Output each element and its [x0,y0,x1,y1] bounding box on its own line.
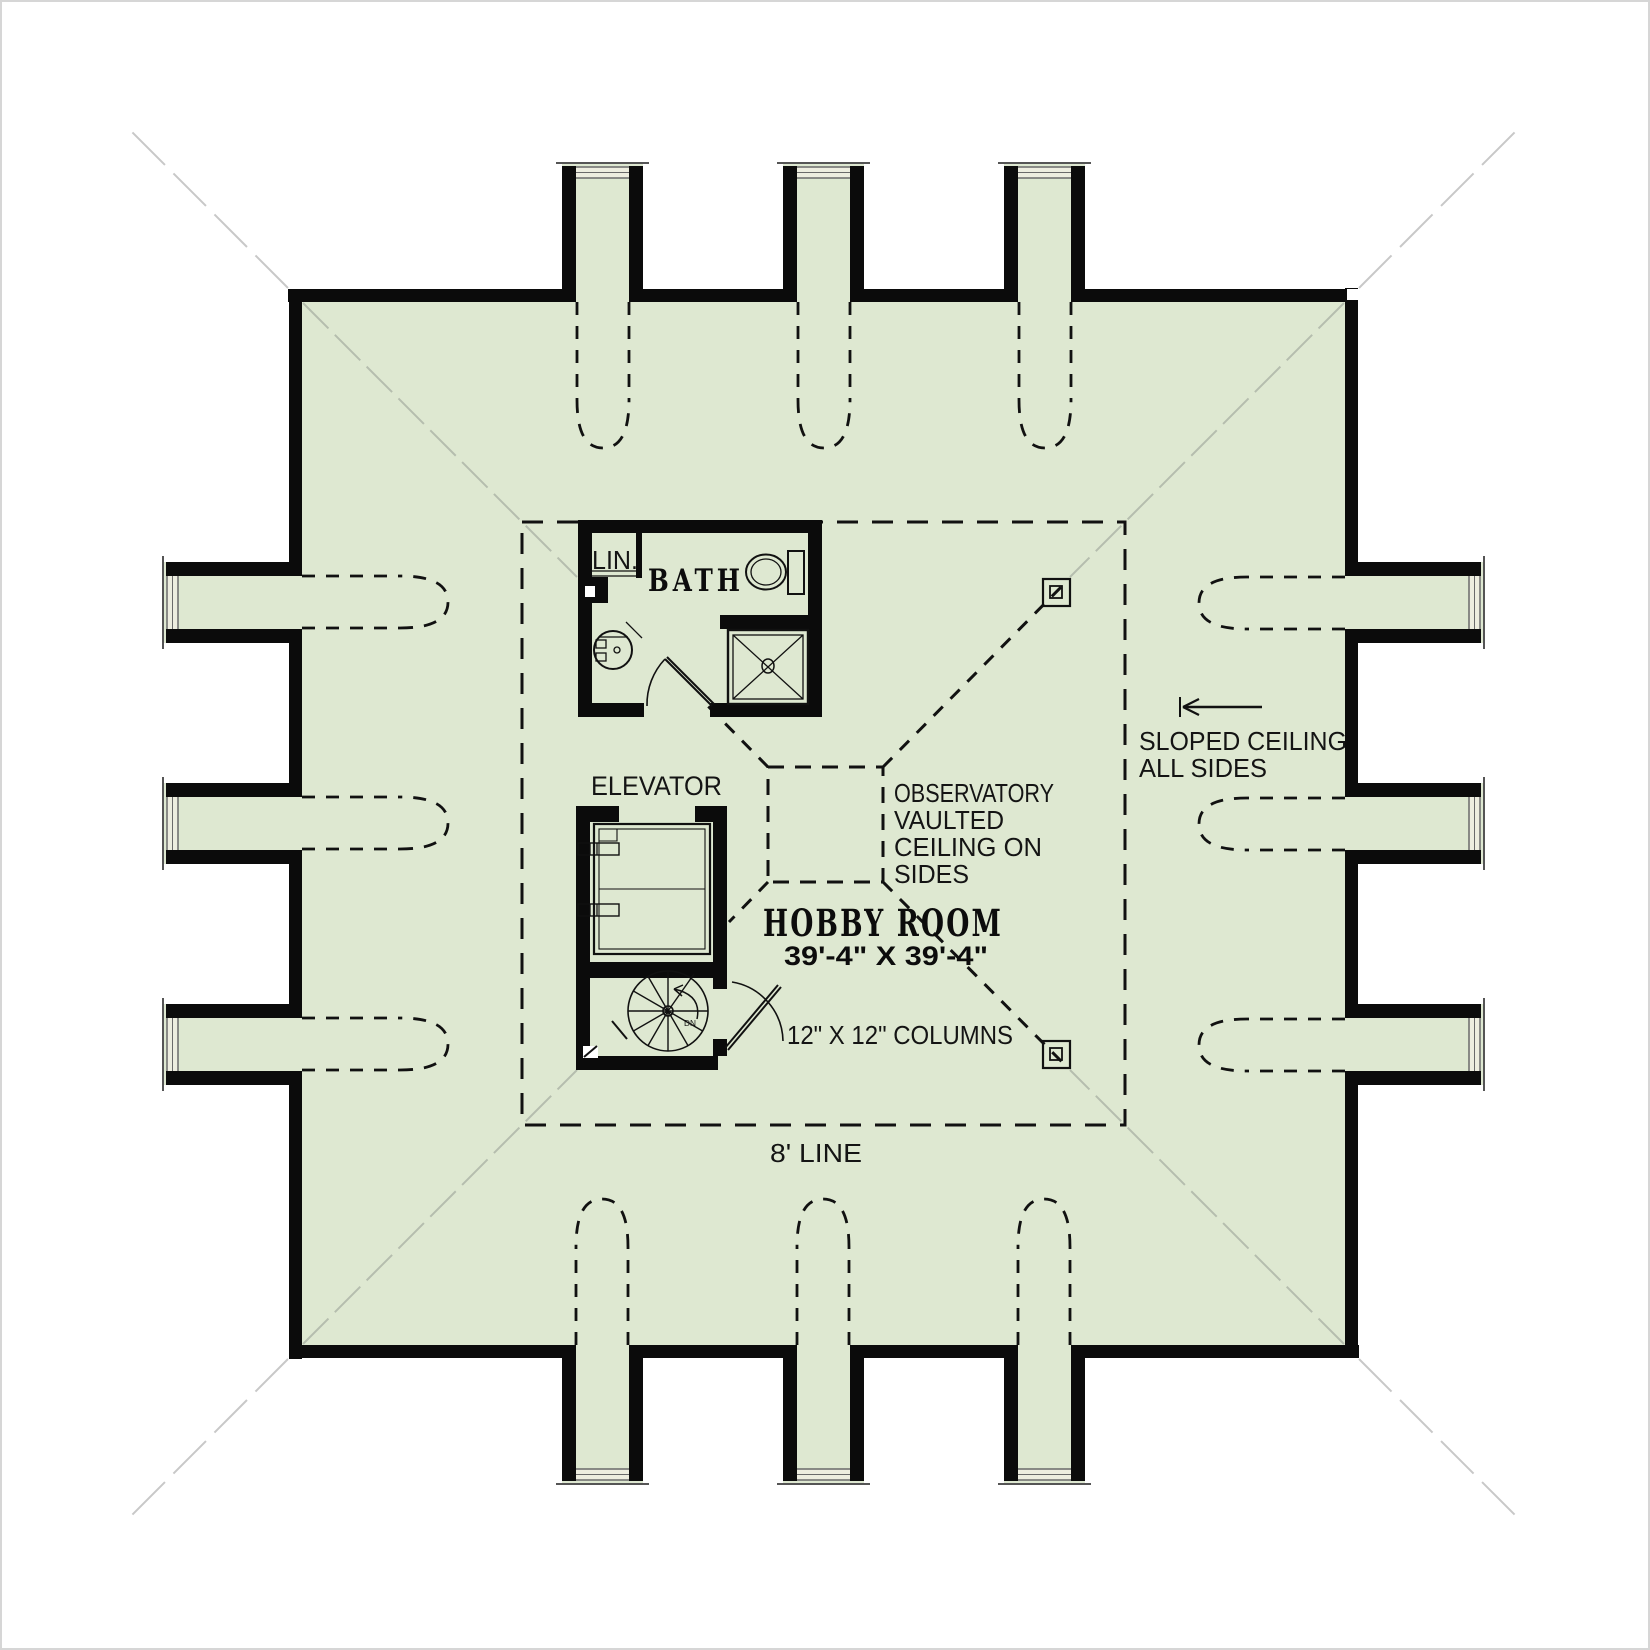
hobby-room-dimensions: 39'-4" X 39'-4" [784,941,988,971]
columns-note: 12" X 12" COLUMNS [787,1020,1013,1050]
shower-wall [720,615,822,629]
floor-plan-page: BATH LIN. ELEVATOR [0,0,1650,1650]
observatory-note-line2: VAULTED [894,807,1004,835]
bath-label: BATH [648,563,744,599]
floor-plan-drawing: BATH LIN. ELEVATOR [0,0,1650,1650]
observatory-note-line1: OBSERVATORY [894,780,1054,808]
eight-foot-line-label: 8' LINE [770,1138,862,1168]
corner-notch [1347,289,1358,300]
sloped-ceiling-label-line1: SLOPED CEILING [1139,728,1347,756]
hobby-room-label: HOBBY ROOM [763,901,1003,945]
observatory-note-line3: CEILING ON [894,834,1042,862]
linen-label: LIN. [592,545,638,575]
observatory-note-line4: SIDES [894,861,969,889]
sloped-ceiling-label-line2: ALL SIDES [1139,755,1267,783]
elevator-label: ELEVATOR [591,771,722,801]
stair-direction-label: DN [684,1019,696,1028]
wall-post-notch [585,586,595,597]
